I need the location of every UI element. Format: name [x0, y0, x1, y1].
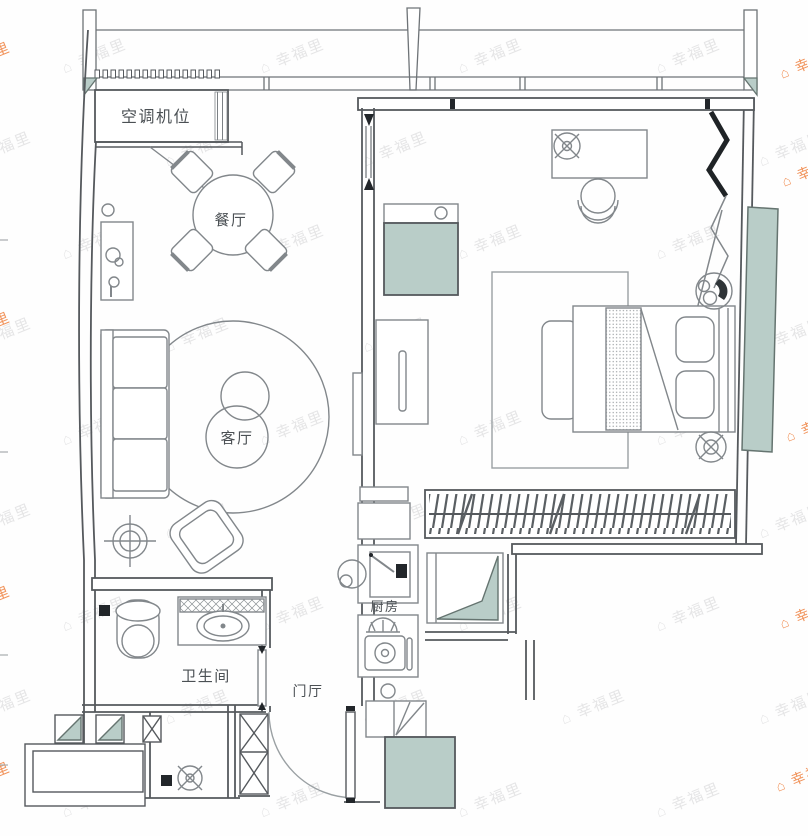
- bath-label: 卫生间: [181, 668, 231, 685]
- top-eave-structure: [83, 8, 757, 95]
- drain-mark: [161, 775, 172, 786]
- door-stop-mark: [364, 114, 374, 126]
- drain-mark: [99, 605, 110, 616]
- bathroom-door: [258, 646, 266, 710]
- living-room: 客厅: [101, 321, 329, 578]
- storage-niche: [427, 553, 503, 623]
- vanity-sink: [178, 597, 266, 645]
- fridge-cabinet: [384, 223, 458, 295]
- ac-label: 空调机位: [121, 108, 191, 126]
- dimension-ticks: [0, 240, 8, 765]
- foyer: 门厅: [269, 683, 355, 803]
- lamp-crosshair-icon: [696, 432, 726, 462]
- door-stop-mark: [364, 178, 374, 190]
- window-teal-band: [742, 207, 778, 452]
- right-exterior-wall: [736, 98, 744, 546]
- wardrobe: [425, 490, 735, 538]
- ac-platform: 空调机位: [95, 90, 242, 155]
- foyer-label: 门厅: [293, 683, 324, 699]
- entry-door-leaf: [346, 712, 355, 798]
- window-mullions: [264, 77, 662, 90]
- desk: [552, 130, 647, 178]
- blanket: [606, 308, 641, 430]
- tv-feature-wall: [92, 578, 272, 590]
- stove: [358, 615, 418, 677]
- double-bed: [573, 306, 735, 432]
- entry-door-swing: [269, 712, 355, 798]
- dining-label: 餐厅: [214, 212, 247, 229]
- wall-joint-mark: [450, 99, 455, 109]
- open-window-icon: [55, 715, 124, 743]
- sofa: [101, 330, 169, 498]
- downlight-icon: [381, 684, 395, 698]
- wall-joint-mark: [705, 99, 710, 109]
- floor-lamp-icon: [104, 515, 156, 567]
- dining-area: 餐厅: [101, 147, 297, 300]
- pillow: [676, 317, 714, 362]
- ac-hatch-strip: [215, 92, 227, 140]
- floor-plan-svg: 空调机位 餐厅: [0, 0, 808, 836]
- plant-icon: [696, 273, 732, 309]
- tv-panel: [353, 373, 362, 455]
- left-exterior-wall: [79, 30, 88, 746]
- kitchen-sink: [338, 545, 418, 603]
- bathroom: 卫生间: [25, 597, 268, 806]
- washer-teal-box: [385, 737, 455, 808]
- structural-column: [240, 714, 268, 794]
- toilet: [116, 600, 160, 658]
- downlight-icon: [102, 204, 114, 216]
- planter-box: [25, 744, 145, 806]
- floorplan-page: ⌂ 幸福里⌂ 幸福里⌂ 幸福里⌂ 幸福里⌂ 幸福里⌂ 幸福里⌂ 幸福里⌂ 幸福里…: [0, 0, 808, 836]
- living-label: 客厅: [220, 430, 253, 447]
- pillow: [676, 371, 714, 418]
- accent-chair: [165, 496, 247, 578]
- coffee-table-small: [221, 372, 269, 420]
- upper-cabinet: [358, 503, 410, 539]
- bedroom-top-wall: [358, 98, 754, 110]
- oven-handle: [407, 638, 412, 670]
- desk-chair: [578, 179, 618, 223]
- shoe-cabinet: [366, 701, 426, 737]
- shower-drain-icon: [178, 766, 202, 790]
- structural-column-small: [143, 716, 161, 742]
- cabinet-handle: [399, 351, 406, 411]
- kitchen-label: 厨房: [370, 599, 399, 614]
- bedroom-bottom-wall: [512, 544, 762, 554]
